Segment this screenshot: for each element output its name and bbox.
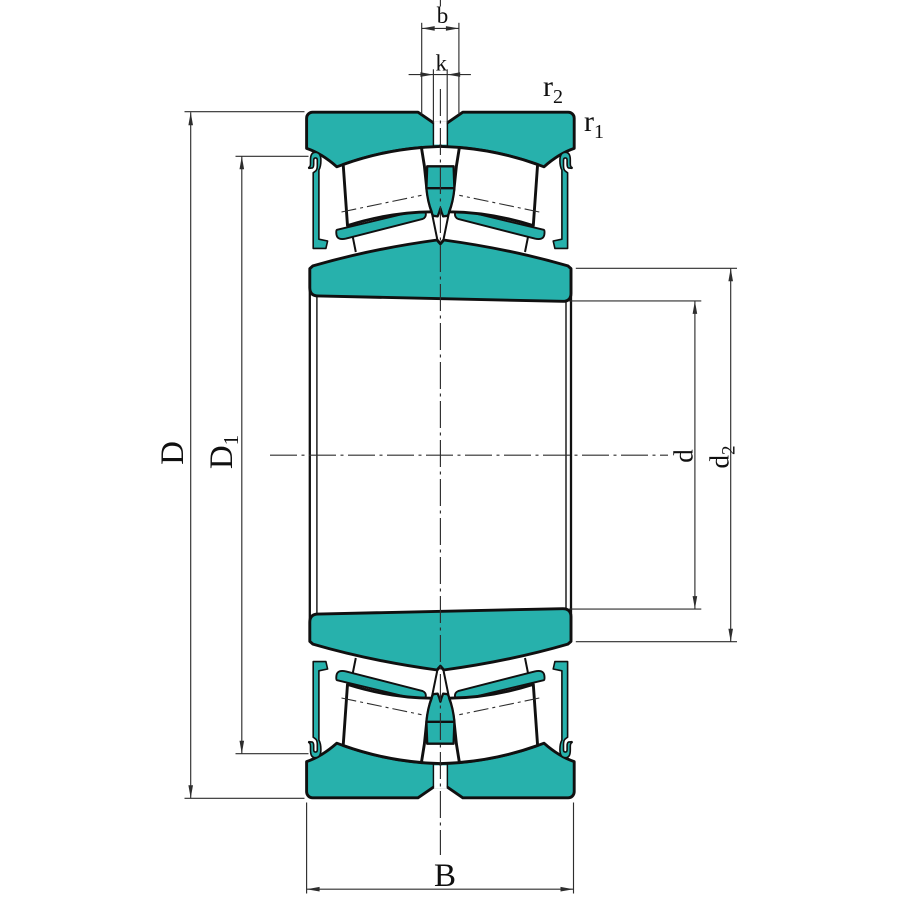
svg-text:b: b — [437, 3, 449, 28]
svg-text:D: D — [155, 441, 191, 465]
svg-text:B: B — [434, 858, 456, 894]
svg-text:k: k — [436, 51, 448, 76]
svg-text:d: d — [669, 449, 699, 463]
